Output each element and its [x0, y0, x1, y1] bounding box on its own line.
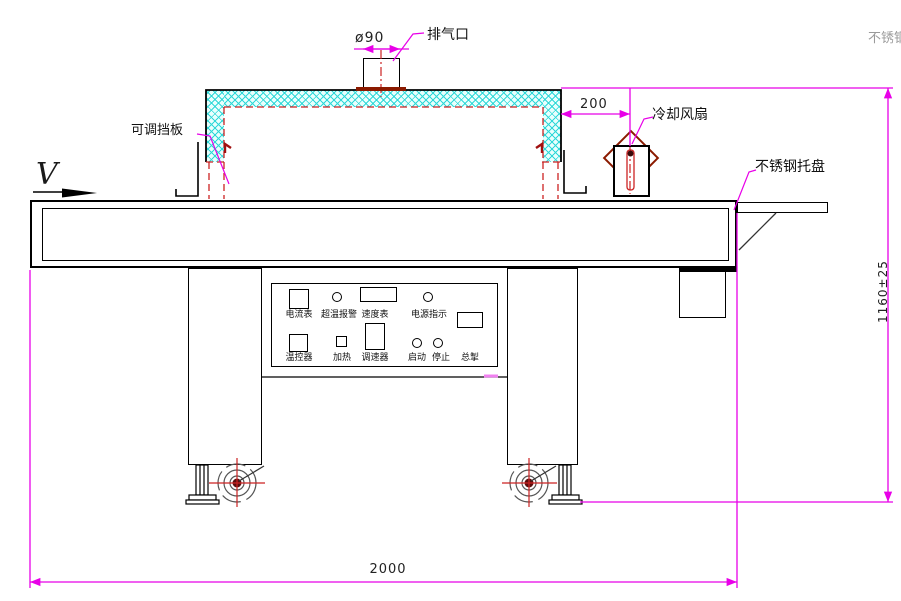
centerlines: [381, 50, 630, 194]
temp-controller-unit[interactable]: [289, 334, 308, 352]
belt-speed-symbol: V: [36, 160, 58, 190]
outfeed-tray: [737, 202, 828, 213]
power-indicator-label: 电源指示: [406, 310, 452, 320]
speed-meter-label: 速度表: [353, 310, 397, 320]
leg-left: [188, 268, 262, 465]
leveling-foot-left: [186, 465, 219, 504]
ammeter-label: 电流表: [277, 310, 321, 320]
baffle-brackets: [176, 142, 586, 196]
length-dim-text: 2000: [358, 562, 418, 577]
leg-right: [507, 268, 578, 465]
main-switch-label: 总掣: [454, 353, 486, 363]
tray-strut: [739, 213, 776, 250]
stop-button[interactable]: [433, 338, 443, 348]
control-panel: 电流表 超温报警 速度表 电源指示 温控器 加热 调速器 启动 停止 总掣: [271, 283, 498, 367]
exhaust-chimney: [363, 58, 400, 90]
power-indicator-lamp: [423, 292, 433, 302]
speed-meter-gauge: [360, 287, 397, 302]
offset-200-dim-text: 200: [580, 97, 608, 112]
oven-top-wall: [206, 90, 561, 107]
stainless-clipped-label: 不锈钢: [868, 27, 901, 46]
motor-box: [679, 271, 726, 318]
exhaust-port-label: 排气口: [427, 24, 469, 44]
heating-switch[interactable]: [336, 336, 347, 347]
drawing-canvas: 电流表 超温报警 速度表 电源指示 温控器 加热 调速器 启动 停止 总掣 排气…: [0, 0, 901, 601]
heater-hooks: [225, 144, 542, 153]
stop-label: 停止: [427, 353, 455, 363]
inner-liner-dashed: [206, 107, 561, 199]
speed-regulator-knob[interactable]: [365, 323, 385, 350]
conveyor-table-inner: [42, 208, 729, 261]
oven-right-wall: [543, 90, 561, 162]
main-switch-block[interactable]: [457, 312, 483, 328]
motor-box-top-bar: [679, 268, 737, 272]
ammeter-gauge: [289, 289, 309, 309]
cooling-fan-label: 冷却风扇: [652, 104, 708, 124]
caster-wheel-right: [502, 458, 557, 507]
caster-wheel-left: [209, 458, 265, 507]
overtemp-alarm-lamp[interactable]: [332, 292, 342, 302]
cooling-fan-box: [613, 145, 650, 197]
diameter-dim-text: ø90: [355, 30, 384, 46]
temp-controller-label: 温控器: [277, 353, 321, 363]
baffle-label: 可调挡板: [131, 119, 183, 138]
oven-left-wall: [206, 90, 224, 162]
leveling-foot-right: [549, 465, 582, 504]
start-button[interactable]: [412, 338, 422, 348]
tray-label: 不锈钢托盘: [755, 156, 825, 176]
height-dim-text: 1160±25: [876, 263, 892, 323]
speed-regulator-label: 调速器: [353, 353, 397, 363]
